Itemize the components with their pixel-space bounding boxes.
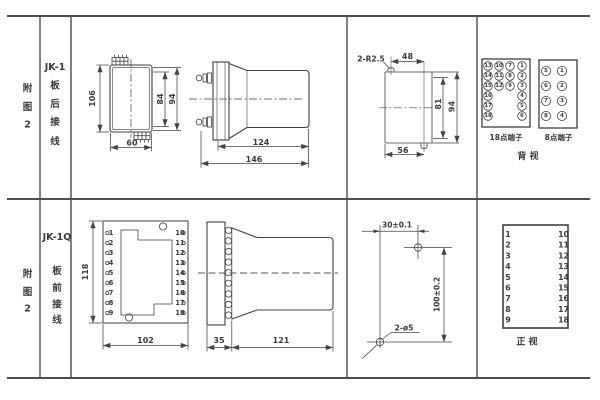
svg-text:18: 18 [175,309,185,317]
svg-text:5: 5 [109,269,114,277]
svg-text:6: 6 [520,113,524,119]
svg-text:5: 5 [505,273,510,282]
title-char: 前 [52,282,62,294]
index-char: 图 [23,287,33,298]
slot-radius-label: 2-R2.5 [357,55,384,64]
relay-body [229,64,309,139]
row2-title-cell: JK-1Q 板 前 接 线 [42,232,72,326]
svg-text:14: 14 [484,73,492,79]
row1-index-cell: 附 图 2 [23,83,33,131]
stud-terminal [196,73,211,83]
drawing-canvas: 附 图 2 JK-1 板 后 接 线 106 60 84 94 [0,0,600,400]
svg-text:2: 2 [520,73,524,79]
svg-text:3: 3 [560,98,564,104]
svg-text:6: 6 [505,284,510,293]
terminal-circles [484,62,527,121]
figure-terminal-table: 1 2 3 4 5 6 7 8 9 10 11 12 13 14 15 16 1… [503,225,569,348]
svg-text:9: 9 [508,83,512,89]
svg-text:8: 8 [505,305,510,314]
svg-text:18: 18 [484,113,492,119]
terminal-18pt-label: 18点端子 [490,132,523,142]
svg-text:4: 4 [560,113,564,119]
svg-text:2: 2 [505,241,510,250]
index-char: 附 [23,83,33,95]
terminal-table-right-column: 10 11 12 13 14 15 16 17 18 [558,230,569,325]
figure-jk1q-front-view: 1 2 3 4 5 6 7 8 9 10 11 12 13 14 15 16 1… [81,221,188,350]
mounting-flange [213,62,229,140]
svg-text:10: 10 [495,63,503,69]
row2-index-cell: 附 图 2 [23,268,33,315]
title-char: 接 [52,299,62,311]
figure-terminal-8pt: 51 62 73 84 8点端子 [539,60,577,142]
title-char: 板 [52,265,62,277]
dim-label-81: 81 [434,98,443,110]
index-char: 附 [23,268,33,280]
svg-text:11: 11 [558,241,569,250]
svg-text:18: 18 [558,316,569,325]
dim-label-124: 124 [253,138,270,147]
left-pin-column: 1 2 3 4 5 6 7 8 9 [106,229,114,317]
technical-drawing-page: 附 图 2 JK-1 板 后 接 线 106 60 84 94 [0,0,600,400]
hole-diameter-label: 2-ø5 [395,324,414,333]
svg-text:6: 6 [544,83,548,89]
svg-text:16: 16 [484,93,492,99]
dim-label-121: 121 [273,336,290,345]
index-char: 图 [23,102,33,113]
svg-text:11: 11 [175,239,185,247]
svg-text:17: 17 [175,299,185,307]
svg-text:14: 14 [558,273,569,282]
figure-panel-cutout: 2-R2.5 48 56 81 94 [357,52,459,159]
svg-text:2: 2 [560,83,564,89]
svg-text:5: 5 [520,103,524,109]
terminal-block-top [112,55,128,66]
dim-label-118: 118 [81,263,90,280]
dim-label-48: 48 [402,52,414,61]
title-char: 线 [52,314,62,326]
svg-text:3: 3 [109,249,114,257]
dim-label-30: 30±0.1 [382,221,412,230]
terminal-8pt-label: 8点端子 [545,132,573,142]
svg-text:11: 11 [495,73,503,79]
svg-text:9: 9 [109,309,114,317]
svg-text:15: 15 [558,284,569,293]
svg-text:17: 17 [484,103,492,109]
svg-text:10: 10 [175,229,185,237]
figure-drilling-plan: 30±0.1 2-ø5 100±0.2 [362,221,452,359]
dim-label-56: 56 [397,146,409,155]
front-view-label: 正 视 [516,336,537,348]
dim-label-100: 100±0.2 [433,277,442,312]
svg-text:2: 2 [109,239,114,247]
right-pin-column: 10 11 12 13 14 15 16 17 18 [175,229,185,317]
mounting-hole [159,223,166,230]
dim-label-94: 94 [448,101,457,113]
svg-text:6: 6 [109,279,114,287]
figure-terminal-18pt: 1310 71 1411 82 1512 93 164 175 186 18点端… [482,59,530,142]
svg-text:15: 15 [484,83,492,89]
svg-text:3: 3 [520,83,524,89]
terminal-numbers: 1310 71 1411 82 1512 93 164 175 186 [484,63,524,119]
svg-text:7: 7 [508,63,512,69]
model-label: JK-1Q [42,232,72,243]
rear-view-label: 背 视 [517,150,538,162]
title-char: 板 [50,80,60,92]
svg-text:12: 12 [558,251,569,260]
connector-outline [121,230,172,315]
svg-text:3: 3 [505,251,510,260]
svg-text:16: 16 [558,294,569,303]
svg-text:7: 7 [505,294,510,303]
svg-text:17: 17 [558,305,569,314]
dim-label-106: 106 [88,90,97,107]
dim-label-146: 146 [246,155,263,164]
svg-text:4: 4 [505,262,511,271]
figure-jk1q-side-view: 35 121 [198,222,338,352]
svg-text:13: 13 [175,259,185,267]
dim-label-102: 102 [137,336,154,345]
svg-text:4: 4 [520,93,524,99]
svg-text:10: 10 [558,230,569,239]
dim-label-60: 60 [126,139,138,148]
figure-jk1-case-front-view: 106 60 84 94 [88,55,181,152]
model-label: JK-1 [44,62,66,73]
index-char: 2 [24,304,31,315]
svg-text:4: 4 [109,259,114,267]
title-char: 后 [50,98,60,110]
svg-text:8: 8 [508,73,512,79]
svg-text:1: 1 [109,229,114,237]
title-char: 线 [50,136,60,148]
svg-text:9: 9 [505,316,510,325]
svg-text:7: 7 [109,289,114,297]
svg-text:16: 16 [175,289,185,297]
svg-text:12: 12 [495,83,503,89]
svg-text:15: 15 [175,279,185,287]
terminal-table-left-column: 1 2 3 4 5 6 7 8 9 [505,230,511,325]
svg-text:14: 14 [175,269,185,277]
svg-text:13: 13 [558,262,569,271]
svg-text:5: 5 [544,68,548,74]
svg-text:13: 13 [484,63,492,69]
stud-terminal [196,117,211,127]
svg-text:1: 1 [505,230,510,239]
svg-text:1: 1 [560,68,564,74]
row1-title-cell: JK-1 板 后 接 线 [44,62,66,148]
index-char: 2 [24,120,31,131]
svg-text:1: 1 [520,63,524,69]
figure-jk1-side-view: 124 146 [189,62,309,168]
dim-label-94: 94 [168,93,177,105]
dim-label-35: 35 [213,336,225,345]
svg-text:12: 12 [175,249,185,257]
title-char: 接 [50,116,60,128]
svg-text:8: 8 [544,113,548,119]
svg-text:7: 7 [544,98,548,104]
svg-text:8: 8 [109,299,114,307]
dim-label-84: 84 [156,93,165,105]
